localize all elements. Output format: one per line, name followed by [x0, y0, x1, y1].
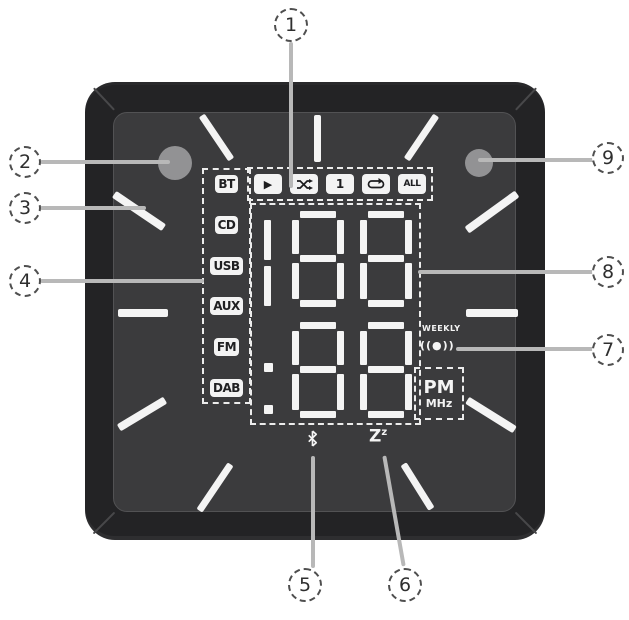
segment — [300, 322, 336, 329]
segment — [360, 263, 367, 299]
seven-seg-digit — [292, 322, 344, 418]
leader-line-1 — [289, 42, 293, 188]
callout-7: 7 — [592, 334, 624, 366]
repeat-all-icon: ALL — [398, 174, 426, 194]
clock-tick-12 — [314, 115, 321, 162]
clock-tick-2 — [465, 191, 520, 234]
digit-row-bottom — [292, 322, 428, 418]
source-bt: BT — [215, 175, 237, 193]
seven-seg-digit — [292, 211, 344, 307]
clock-tick-7 — [196, 462, 233, 512]
segment — [292, 263, 299, 299]
source-fm: FM — [214, 338, 239, 356]
seven-seg-digit — [264, 211, 274, 307]
diagram-canvas: BT CD USB AUX FM DAB ▶ 1 — [0, 0, 629, 620]
device-bezel: BT CD USB AUX FM DAB ▶ 1 — [85, 82, 545, 540]
segment — [292, 374, 299, 410]
segment — [360, 374, 367, 410]
leader-line-4 — [40, 279, 204, 283]
source-list: BT CD USB AUX FM DAB — [202, 168, 251, 404]
segment — [368, 322, 404, 329]
segment — [368, 366, 404, 373]
segment — [292, 220, 299, 254]
source-dab: DAB — [210, 379, 243, 397]
segment — [405, 220, 412, 254]
source-cd: CD — [215, 216, 239, 234]
bevel-line — [93, 512, 116, 535]
alarm-wave-icon: ((●)) — [420, 339, 455, 352]
segment — [264, 220, 271, 260]
segment — [405, 331, 412, 365]
bevel-line — [515, 87, 537, 110]
segment — [405, 374, 412, 410]
segment — [360, 220, 367, 254]
repeat-icon — [362, 174, 390, 194]
mhz-label: MHz — [426, 398, 453, 409]
callout-2: 2 — [9, 146, 41, 178]
bluetooth-icon — [307, 430, 318, 451]
leader-line-9 — [478, 158, 594, 162]
segment — [264, 266, 271, 306]
repeat-one-icon: 1 — [326, 174, 354, 194]
segment — [368, 211, 404, 218]
segment — [337, 331, 344, 365]
shuffle-icon — [290, 174, 318, 194]
round-sensor-right — [465, 149, 493, 177]
device-face: BT CD USB AUX FM DAB ▶ 1 — [113, 112, 516, 512]
segment — [405, 263, 412, 299]
callout-3: 3 — [9, 192, 41, 224]
clock-tick-3 — [466, 309, 518, 317]
clock-tick-9 — [118, 309, 168, 317]
segment — [300, 366, 336, 373]
callout-4: 4 — [9, 265, 41, 297]
leader-line-3 — [40, 206, 146, 210]
leader-line-7 — [456, 347, 594, 351]
clock-tick-10 — [112, 191, 166, 231]
segment — [337, 374, 344, 410]
play-icon: ▶ — [254, 174, 282, 194]
colon-dot-bottom — [264, 405, 273, 414]
callout-5: 5 — [288, 568, 322, 602]
segment — [300, 255, 336, 262]
clock-tick-1 — [404, 114, 439, 162]
callout-1: 1 — [274, 8, 308, 42]
seven-seg-digit — [360, 211, 412, 307]
segment — [368, 255, 404, 262]
clock-tick-5 — [400, 462, 434, 511]
source-aux: AUX — [210, 297, 242, 315]
seven-seg-digit — [360, 322, 412, 418]
source-usb: USB — [210, 257, 242, 275]
leader-line-2 — [40, 160, 170, 164]
clock-tick-8 — [117, 397, 167, 432]
sleep-icon: Zz — [369, 428, 387, 446]
segment — [337, 263, 344, 299]
clock-tick-4 — [465, 397, 517, 433]
segment — [300, 211, 336, 218]
bevel-line — [515, 512, 538, 535]
callout-8: 8 — [592, 256, 624, 288]
pm-label: PM — [423, 379, 454, 397]
leader-line-8 — [418, 270, 594, 274]
segment — [292, 331, 299, 365]
weekly-label: WEEKLY — [422, 324, 461, 333]
segment — [300, 300, 336, 307]
segment — [368, 411, 404, 418]
segment — [337, 220, 344, 254]
callout-9: 9 — [592, 142, 624, 174]
colon-dot-top — [264, 363, 273, 372]
bevel-line — [93, 87, 115, 110]
leader-line-5 — [311, 456, 315, 568]
digit-row-top — [264, 211, 428, 307]
pm-mhz-box: PM MHz — [414, 367, 464, 420]
playback-icon-row: ▶ 1 ALL — [247, 167, 433, 201]
segment — [360, 331, 367, 365]
callout-6: 6 — [388, 568, 422, 602]
segment — [368, 300, 404, 307]
segment — [300, 411, 336, 418]
clock-tick-11 — [199, 114, 234, 162]
